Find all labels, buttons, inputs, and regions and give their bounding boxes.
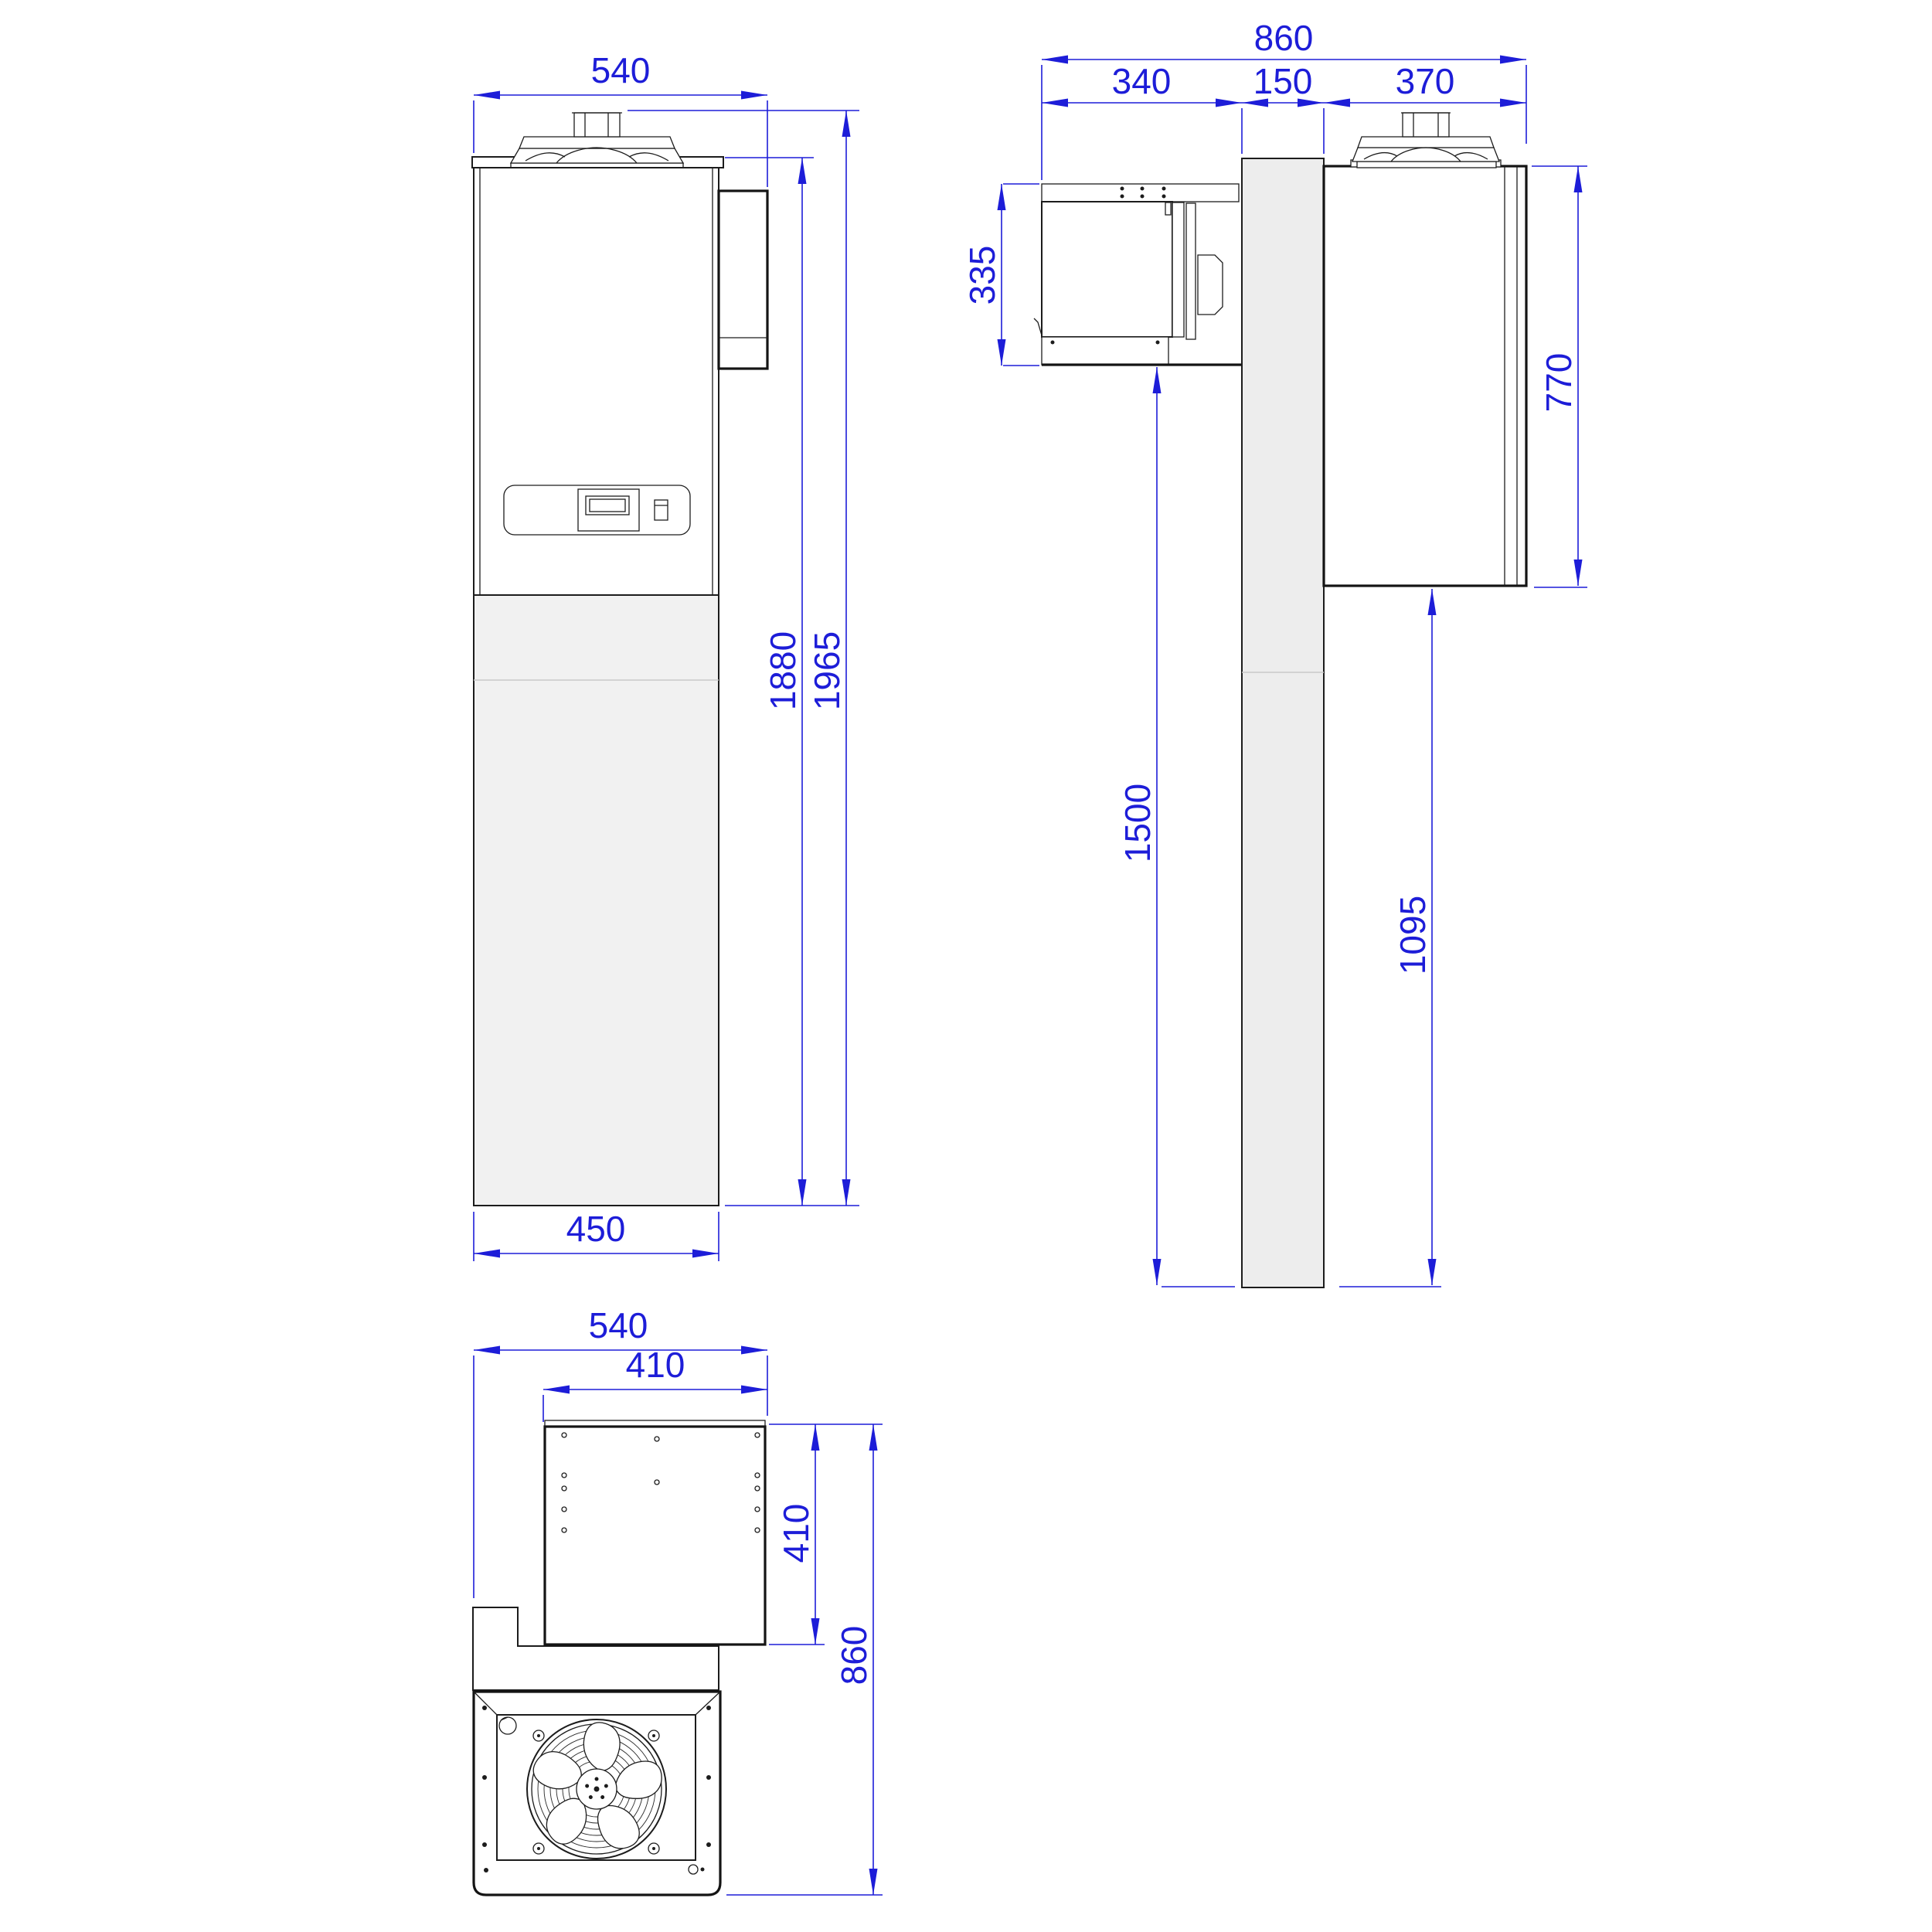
front-dim-base-width: 450	[474, 1209, 719, 1261]
front-base-panel	[474, 595, 719, 1206]
side-dim-mount-clearance: 1500	[1117, 367, 1235, 1287]
control-panel	[504, 485, 690, 535]
dim-label-evaporator-height: 770	[1539, 353, 1579, 413]
side-dim-evaporator-clearance: 1095	[1339, 589, 1441, 1287]
front-view: 540 1880 1965 450	[472, 50, 859, 1261]
drawing-svg: 540 1880 1965 450	[0, 0, 1932, 1932]
side-chimney	[1403, 113, 1449, 137]
top-view: 540 410 410 860	[473, 1305, 883, 1895]
front-fan-cap	[511, 113, 683, 170]
dim-label-evaporator-depth: 370	[1396, 61, 1455, 101]
dim-label-front-total-height: 1965	[807, 631, 847, 710]
dim-label-condenser-depth: 340	[1112, 61, 1172, 101]
evaporator-box	[1324, 166, 1526, 586]
technical-drawing: 540 1880 1965 450	[0, 0, 1932, 1932]
side-fan-cap	[1352, 113, 1499, 168]
condenser-fan-motor	[1198, 255, 1223, 315]
side-dim-condenser-depth: 340	[1042, 61, 1242, 107]
side-view: 860 340 150 370	[962, 18, 1587, 1287]
top-evaporator-plate	[545, 1427, 765, 1645]
top-dim-plate-width: 410	[543, 1345, 767, 1422]
front-condenser-box	[719, 191, 767, 369]
condenser-coil	[1172, 202, 1184, 337]
dim-label-front-base-width: 450	[566, 1209, 626, 1249]
condenser-unit	[1034, 184, 1241, 365]
side-dim-condenser-height: 335	[962, 184, 1039, 366]
dim-label-wall-thickness: 150	[1253, 61, 1313, 101]
side-dim-evaporator-height: 770	[1532, 166, 1587, 587]
dim-label-top-plate-width: 410	[626, 1345, 685, 1385]
dim-label-top-plate-depth: 410	[776, 1504, 816, 1563]
dim-label-side-total-depth: 860	[1254, 18, 1314, 58]
controller-display	[590, 499, 625, 512]
dim-label-top-total-depth: 860	[834, 1626, 874, 1685]
wall-section	[1242, 158, 1324, 1287]
power-switch	[655, 500, 668, 520]
dim-label-front-total-width: 540	[591, 50, 651, 90]
dim-label-mount-clearance: 1500	[1117, 784, 1158, 862]
dim-label-condenser-height: 335	[962, 246, 1002, 305]
condenser-tray	[1042, 337, 1168, 365]
front-chimney	[574, 113, 620, 137]
top-dim-plate-depth: 410	[769, 1424, 883, 1645]
side-dim-evaporator-depth: 370	[1324, 61, 1526, 107]
condenser-housing	[1042, 202, 1172, 337]
condenser-mount-plate	[1042, 184, 1239, 202]
dim-label-front-body-height: 1880	[763, 631, 803, 710]
dim-label-evaporator-clearance: 1095	[1393, 896, 1433, 975]
fan-panel	[474, 1692, 720, 1895]
side-dim-wall-thickness: 150	[1242, 61, 1324, 154]
dim-label-top-total-width: 540	[589, 1305, 648, 1345]
